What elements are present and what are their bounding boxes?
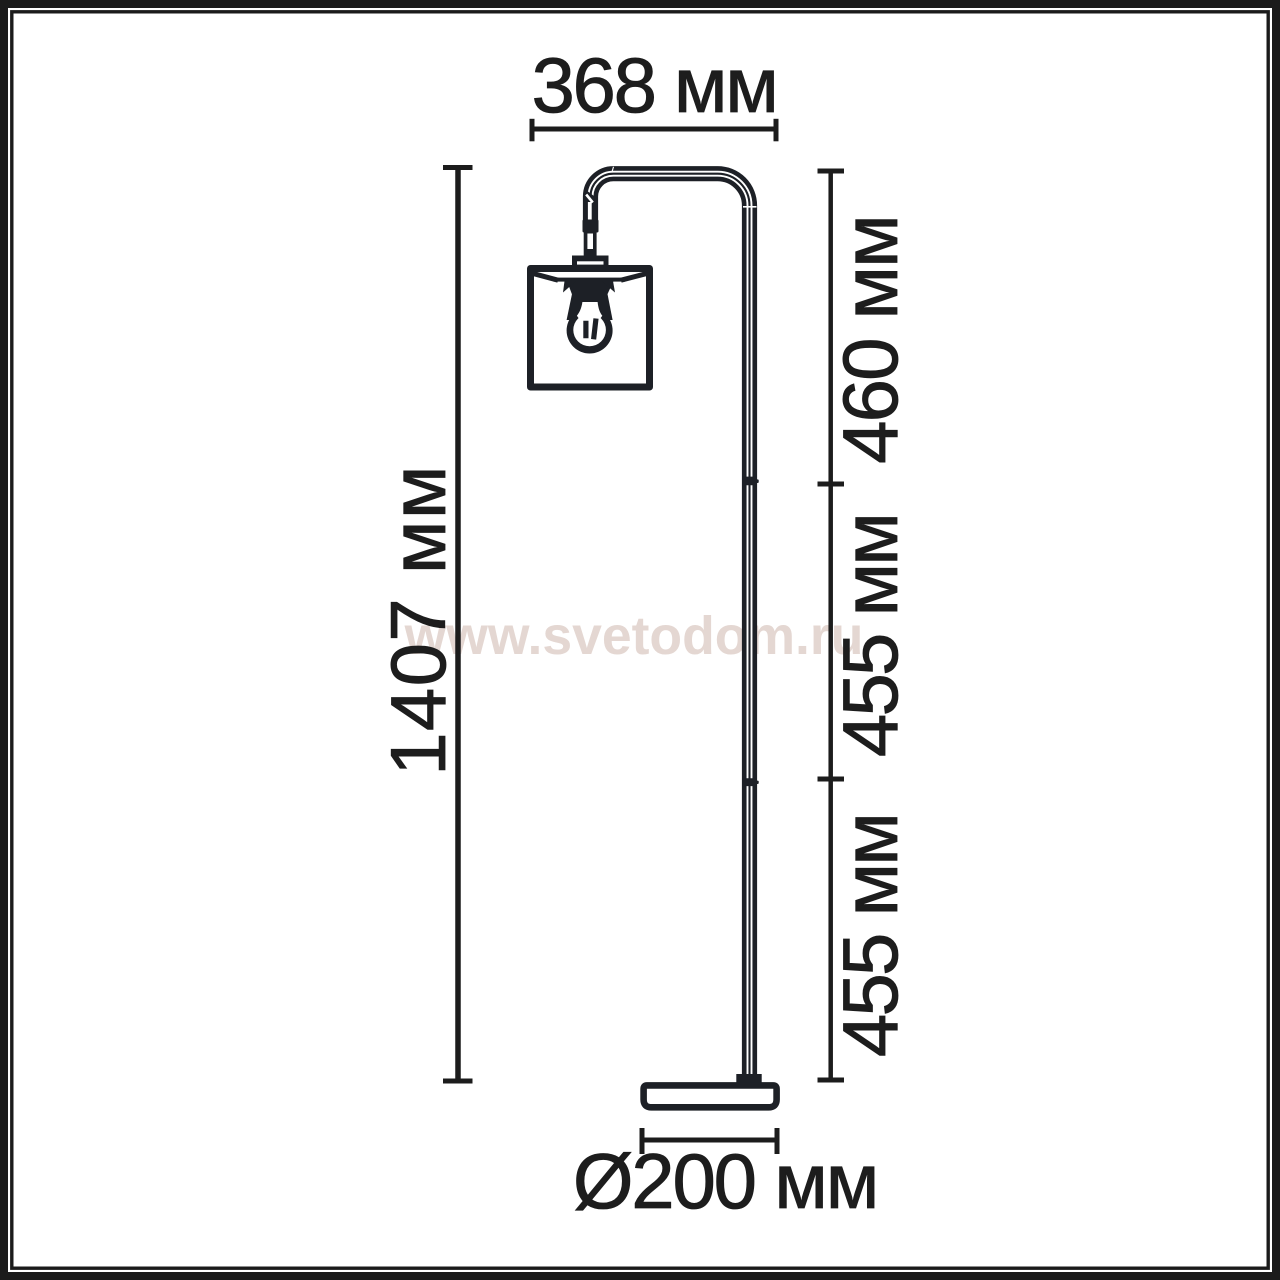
svg-text:Ø200 мм: Ø200 мм [573, 1137, 877, 1225]
svg-text:www.svetodom.ru: www.svetodom.ru [404, 607, 864, 666]
svg-text:455 мм: 455 мм [826, 815, 914, 1057]
svg-text:460 мм: 460 мм [826, 216, 914, 464]
svg-text:368 мм: 368 мм [532, 41, 777, 129]
svg-text:455 мм: 455 мм [826, 515, 914, 757]
svg-text:1407 мм: 1407 мм [374, 464, 462, 776]
